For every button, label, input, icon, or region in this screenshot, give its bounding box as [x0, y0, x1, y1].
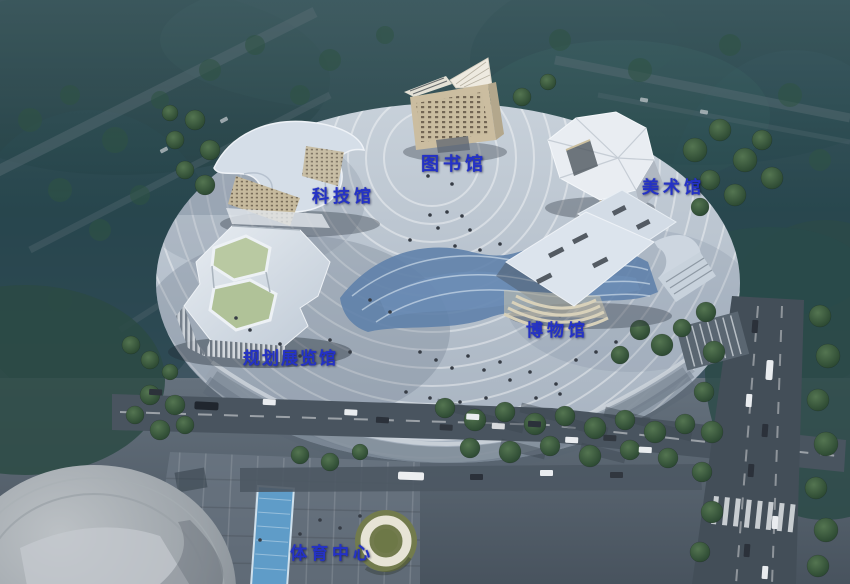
building-label-sports-center: 体育中心 — [290, 539, 374, 564]
scene-canvas — [0, 0, 850, 584]
reflecting-pool — [251, 486, 294, 584]
building-label-library: 图书馆 — [421, 150, 487, 176]
building-label-science-museum: 科技馆 — [312, 182, 375, 207]
building-label-art-museum: 美术馆 — [642, 173, 705, 198]
building-label-planning-exhibition-hall: 规划展览馆 — [243, 344, 338, 369]
building-label-museum: 博物馆 — [526, 316, 589, 341]
aerial-rendering: 图书馆 科技馆 美术馆 博物馆 规划展览馆 体育中心 — [0, 0, 850, 584]
